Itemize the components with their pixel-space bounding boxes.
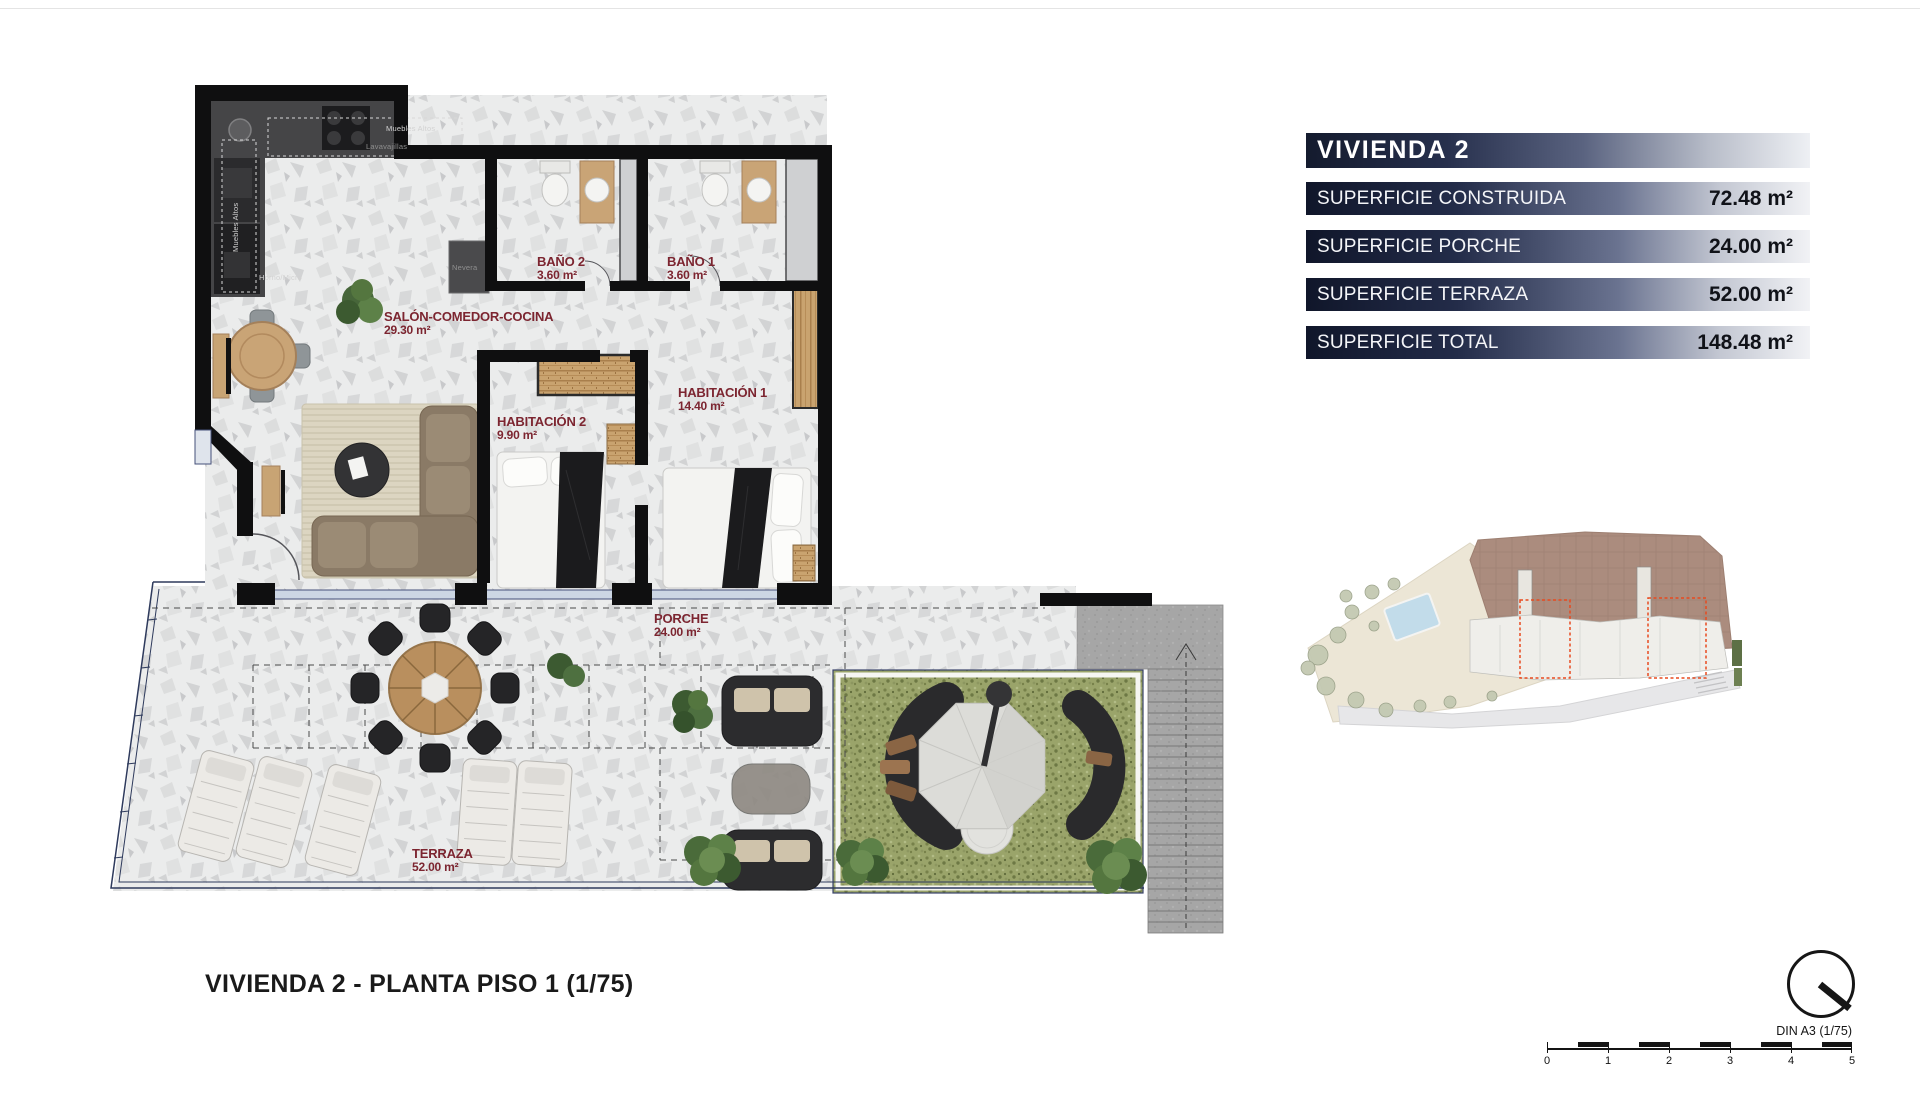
room-label-habitacion1: HABITACIÓN 1 14.40 m² xyxy=(678,386,767,413)
scale-tick-label: 2 xyxy=(1666,1055,1672,1067)
drawing-title: VIVIENDA 2 - PLANTA PISO 1 (1/75) xyxy=(205,970,634,999)
sheet-format-label: DIN A3 (1/75) xyxy=(1776,1024,1852,1038)
kitchen-label-upper-cabinets-top: Muebles Altos xyxy=(386,124,435,133)
room-label-porche: PORCHE 24.00 m² xyxy=(654,612,708,639)
plan-sheet: SALÓN-COMEDOR-COCINA 29.30 m² BAÑO 2 3.6… xyxy=(0,0,1920,1110)
info-panel-title: VIVIENDA 2 xyxy=(1306,133,1810,168)
scale-tick-label: 3 xyxy=(1727,1055,1733,1067)
info-row-terraza: SUPERFICIE TERRAZA 52.00 m² xyxy=(1306,278,1810,311)
scale-tick-label: 1 xyxy=(1605,1055,1611,1067)
kitchen-label-fridge: Nevera xyxy=(452,263,477,272)
scale-tick-label: 0 xyxy=(1544,1055,1550,1067)
kitchen-label-dishwasher: Lavavajillas xyxy=(366,142,407,151)
kitchen-label-upper-cabinets-left: Muebles Altos xyxy=(231,160,240,252)
room-label-habitacion2: HABITACIÓN 2 9.90 m² xyxy=(497,415,586,442)
site-plan-minimap xyxy=(1301,532,1742,728)
room-label-salon: SALÓN-COMEDOR-COCINA 29.30 m² xyxy=(384,310,553,337)
surface-info-panel: VIVIENDA 2 SUPERFICIE CONSTRUIDA 72.48 m… xyxy=(1306,133,1810,374)
room-label-bano2: BAÑO 2 3.60 m² xyxy=(537,255,585,282)
info-row-total: SUPERFICIE TOTAL 148.48 m² xyxy=(1306,326,1810,359)
scale-bar-graphic xyxy=(1547,1042,1852,1050)
info-row-construida: SUPERFICIE CONSTRUIDA 72.48 m² xyxy=(1306,182,1810,215)
room-label-terraza: TERRAZA 52.00 m² xyxy=(412,847,473,874)
scale-tick-label: 5 xyxy=(1849,1055,1855,1067)
north-arrow-icon xyxy=(1787,950,1855,1018)
scale-bar: DIN A3 (1/75) 0 1 2 3 4 5 xyxy=(1547,1024,1852,1070)
info-row-porche: SUPERFICIE PORCHE 24.00 m² xyxy=(1306,230,1810,263)
living-rug-sofa xyxy=(302,404,480,578)
room-label-bano1: BAÑO 1 3.60 m² xyxy=(667,255,715,282)
kitchen-label-oven-micro: Horno/Micro xyxy=(259,273,302,282)
scale-tick-label: 4 xyxy=(1788,1055,1794,1067)
terrace-dining-set xyxy=(351,604,519,772)
